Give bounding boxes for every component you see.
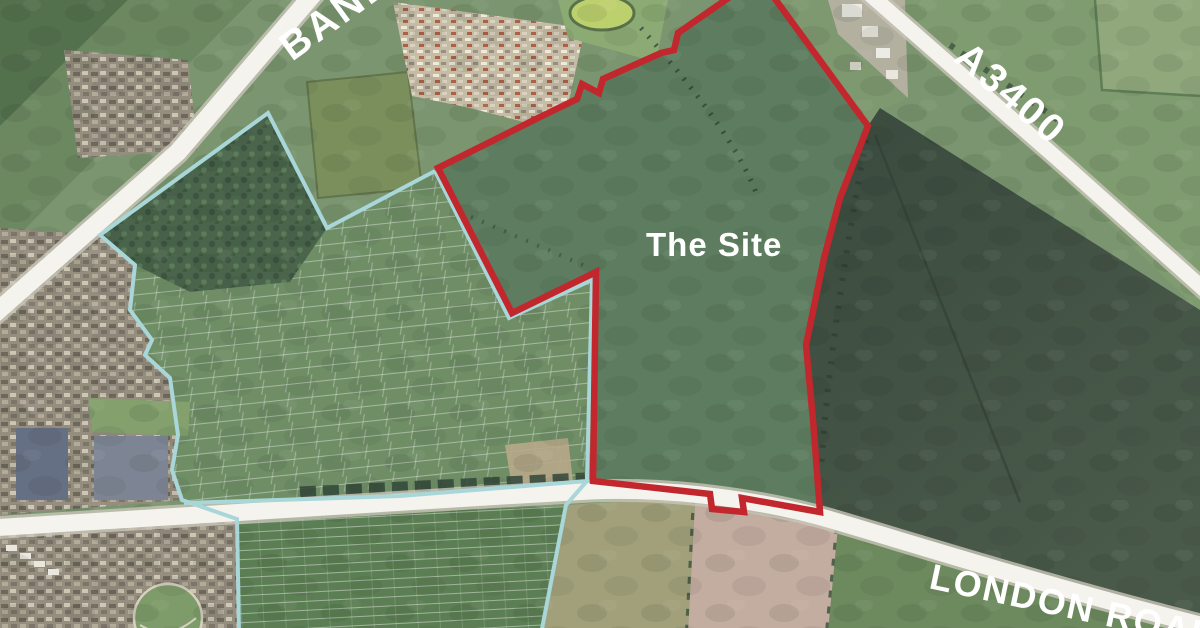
site-label: The Site <box>646 226 782 263</box>
map-canvas: BANBURY ROAD A3400 LONDON ROAD The Site <box>0 0 1200 628</box>
aerial-map: BANBURY ROAD A3400 LONDON ROAD The Site <box>0 0 1200 628</box>
